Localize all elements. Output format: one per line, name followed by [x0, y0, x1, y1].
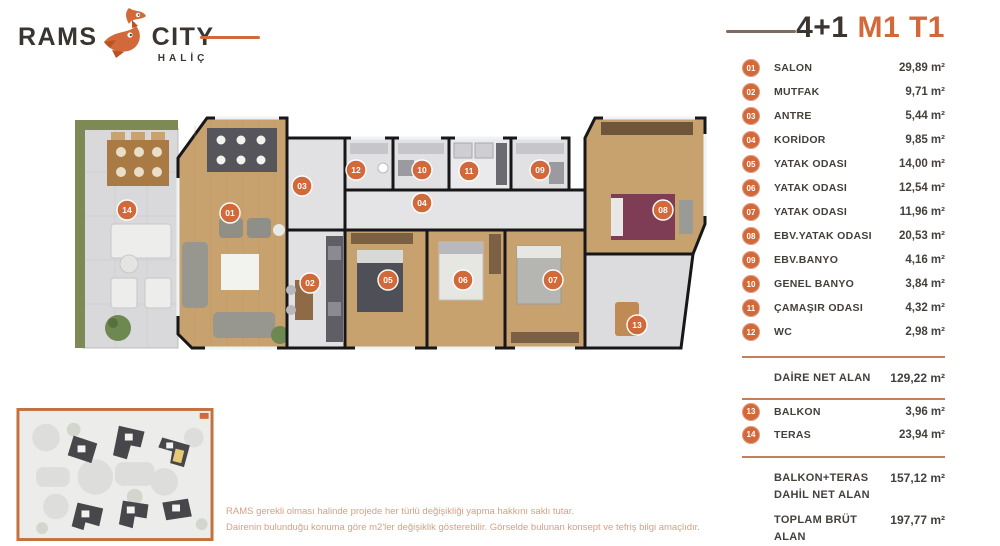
plan-badge-number: 07 — [548, 275, 558, 285]
room-list-item: 02MUTFAK9,71 m² — [742, 80, 945, 104]
room-number-badge: 02 — [742, 83, 760, 101]
disclaimer-line-1: RAMS gerekli olması halinde projede her … — [226, 504, 731, 520]
room-list-item: 13BALKON3,96 m² — [742, 400, 945, 423]
room-label: GENEL BANYO — [774, 278, 854, 290]
room-number-badge: 13 — [742, 403, 760, 421]
logo-birds-icon — [102, 6, 150, 58]
room-number-badge: 04 — [742, 131, 760, 149]
logo-text-rams: RAMS — [18, 24, 98, 52]
room-label: TERAS — [774, 429, 811, 441]
total-label: BALKON+TERAS DAHİL NET ALAN — [774, 470, 890, 504]
room-area-value: 3,84 m² — [905, 278, 945, 290]
room-number-badge: 12 — [742, 323, 760, 341]
room-area-value: 29,89 m² — [899, 62, 945, 74]
room-number-badge: 01 — [742, 59, 760, 77]
room-label: KORİDOR — [774, 134, 826, 146]
room-number-badge: 03 — [742, 107, 760, 125]
room-list-item: 06YATAK ODASI12,54 m² — [742, 176, 945, 200]
room-list-item: 04KORİDOR9,85 m² — [742, 128, 945, 152]
total-row: TOPLAM BRÜT ALAN197,77 m² — [742, 512, 945, 546]
plan-badge-number: 03 — [297, 181, 307, 191]
plan-badge-number: 05 — [383, 275, 393, 285]
logo-text-halic: HALİÇ — [158, 53, 209, 64]
disclaimer-line-2: Dairenin bulunduğu konuma göre m2'ler de… — [226, 520, 731, 536]
plan-badge-number: 02 — [305, 278, 315, 288]
salon-dining-table — [207, 128, 277, 172]
room-list-item: 03ANTRE5,44 m² — [742, 104, 945, 128]
outdoor-list: 13BALKON3,96 m²14TERAS23,94 m² — [742, 400, 945, 446]
room-number-badge: 08 — [742, 227, 760, 245]
room-area-value: 9,71 m² — [905, 86, 945, 98]
plan-variant-label: M1 T1 — [857, 11, 945, 45]
disclaimer-text: RAMS gerekli olması halinde projede her … — [226, 504, 731, 535]
room-number-badge: 14 — [742, 426, 760, 444]
room-area-value: 23,94 m² — [899, 429, 945, 441]
room-area-value: 12,54 m² — [899, 182, 945, 194]
room-label: WC — [774, 326, 792, 338]
plan-badge-number: 12 — [351, 165, 361, 175]
room-area-value: 20,53 m² — [899, 230, 945, 242]
hedge-left — [75, 120, 85, 348]
terrace-area — [75, 120, 178, 348]
room-label: YATAK ODASI — [774, 206, 847, 218]
room-number-badge: 09 — [742, 251, 760, 269]
room-number-badge: 10 — [742, 275, 760, 293]
room-label: MUTFAK — [774, 86, 820, 98]
room-list-item: 08EBV.YATAK ODASI20,53 m² — [742, 224, 945, 248]
total-value: 157,12 m² — [890, 470, 945, 485]
yatak-odasi-7-room — [505, 230, 585, 348]
plan-badge-number: 08 — [658, 205, 668, 215]
room-list-item: 11ÇAMAŞIR ODASI4,32 m² — [742, 296, 945, 320]
room-label: BALKON — [774, 406, 821, 418]
room-number-badge: 05 — [742, 155, 760, 173]
ebv-yatak-room — [585, 118, 705, 254]
net-area-label: DAİRE NET ALAN — [774, 372, 871, 384]
plan-badge-number: 04 — [417, 198, 427, 208]
brochure-page: RAMS CITY HALİÇ 4+1 M1 T1 — [0, 0, 1000, 546]
plan-badge-number: 13 — [632, 320, 642, 330]
room-list-item: 14TERAS23,94 m² — [742, 423, 945, 446]
room-area-value: 5,44 m² — [905, 110, 945, 122]
net-area-value: 129,22 m² — [890, 371, 945, 385]
room-label: YATAK ODASI — [774, 182, 847, 194]
plan-badge-number: 10 — [417, 165, 427, 175]
brand-logo: RAMS CITY HALİÇ — [18, 24, 215, 64]
site-plan-thumbnail — [15, 408, 215, 541]
page-title: 4+1 M1 T1 — [742, 11, 945, 45]
koridor-area — [345, 190, 585, 230]
terrace-dining-set — [107, 132, 169, 186]
room-label: ANTRE — [774, 110, 812, 122]
total-row: BALKON+TERAS DAHİL NET ALAN157,12 m² — [742, 470, 945, 504]
plan-badge-number: 11 — [465, 166, 474, 176]
room-area-value: 4,16 m² — [905, 254, 945, 266]
floor-plan: 0102030405060708091011121314 — [55, 106, 715, 368]
totals-list: BALKON+TERAS DAHİL NET ALAN157,12 m²TOPL… — [742, 470, 945, 546]
total-label: TOPLAM BRÜT ALAN — [774, 512, 890, 546]
logo-city-block: CITY HALİÇ — [152, 24, 215, 64]
room-list: 01SALON29,89 m²02MUTFAK9,71 m²03ANTRE5,4… — [742, 56, 945, 344]
room-area-value: 2,98 m² — [905, 326, 945, 338]
hedge-top — [75, 120, 178, 130]
room-number-badge: 06 — [742, 179, 760, 197]
room-list-item: 12WC2,98 m² — [742, 320, 945, 344]
plan-badge-number: 01 — [225, 208, 235, 218]
room-list-panel: 01SALON29,89 m²02MUTFAK9,71 m²03ANTRE5,4… — [742, 56, 945, 546]
room-label: SALON — [774, 62, 812, 74]
room-list-item: 07YATAK ODASI11,96 m² — [742, 200, 945, 224]
room-area-value: 3,96 m² — [905, 406, 945, 418]
divider-line — [742, 356, 945, 358]
room-label: EBV.YATAK ODASI — [774, 230, 872, 242]
room-area-value: 11,96 m² — [900, 206, 945, 218]
room-number-badge: 07 — [742, 203, 760, 221]
room-area-value: 9,85 m² — [905, 134, 945, 146]
divider-line — [742, 456, 945, 458]
terrace-plant — [105, 315, 131, 341]
room-label: YATAK ODASI — [774, 158, 847, 170]
logo-dash-line — [200, 36, 260, 39]
room-label: ÇAMAŞIR ODASI — [774, 302, 863, 314]
room-number-badge: 11 — [742, 299, 760, 317]
room-label: EBV.BANYO — [774, 254, 838, 266]
net-area-row: DAİRE NET ALAN 129,22 m² — [742, 366, 945, 390]
room-area-value: 14,00 m² — [899, 158, 945, 170]
plan-type-label: 4+1 — [796, 11, 848, 45]
room-area-value: 4,32 m² — [905, 302, 945, 314]
room-list-item: 01SALON29,89 m² — [742, 56, 945, 80]
room-list-item: 05YATAK ODASI14,00 m² — [742, 152, 945, 176]
salon-room — [178, 118, 289, 348]
total-value: 197,77 m² — [890, 512, 945, 527]
room-list-item: 10GENEL BANYO3,84 m² — [742, 272, 945, 296]
camasir-room — [449, 138, 511, 190]
plan-badge-number: 14 — [122, 205, 132, 215]
room-list-item: 09EBV.BANYO4,16 m² — [742, 248, 945, 272]
plan-badge-number: 09 — [535, 165, 545, 175]
plan-badge-number: 06 — [458, 275, 468, 285]
